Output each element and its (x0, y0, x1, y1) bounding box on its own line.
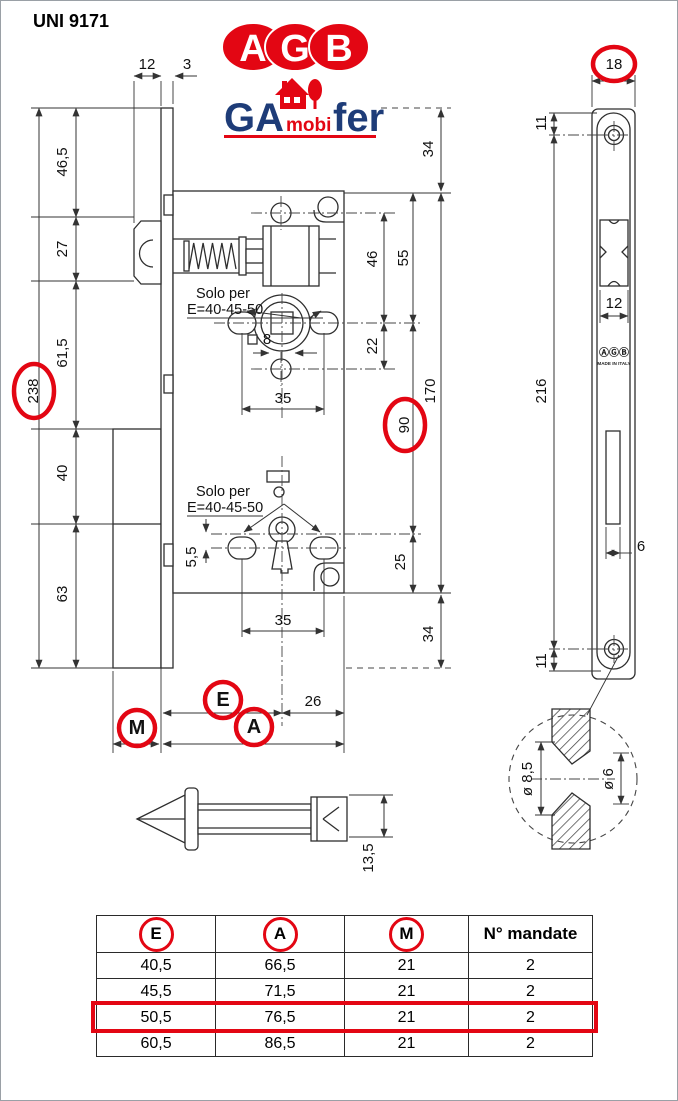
table-cell: 21 (344, 979, 468, 1005)
countersink-detail: ø 8,5 ø 6 (509, 709, 637, 849)
dim-26: 26 (305, 693, 322, 710)
dim-27: 27 (54, 241, 71, 258)
table-cell: 86,5 (216, 1031, 345, 1057)
dim-35-top: 35 (275, 390, 292, 407)
callout-a: A (247, 716, 261, 738)
table-cell: 2 (468, 1031, 592, 1057)
table-row: 50,576,5212 (97, 1005, 593, 1031)
agb-letter: B (325, 28, 352, 70)
header-mandate: N° mandate (468, 916, 592, 953)
table-cell: 21 (344, 1031, 468, 1057)
dim-63: 63 (54, 586, 71, 603)
dim-22: 22 (364, 338, 381, 355)
table-row: 40,566,5212 (97, 953, 593, 979)
dim-13-5: 13,5 (360, 843, 377, 872)
agb-logo: A G B (222, 23, 369, 71)
table-cell: 2 (468, 953, 592, 979)
dim-8-5: ø 8,5 (519, 762, 536, 796)
dim-square-8: 8 (263, 331, 271, 348)
table-row: 60,586,5212 (97, 1031, 593, 1057)
dim-61-5: 61,5 (54, 338, 71, 367)
table-cell: 66,5 (216, 953, 345, 979)
front-view: 18 11 12 ⒶⒼⒷ MADE IN ITALY 216 (533, 47, 645, 715)
dim-11-top: 11 (533, 115, 550, 131)
dim-55: 55 (395, 250, 412, 267)
standard-label: UNI 9171 (33, 11, 109, 31)
spec-table-body: 40,566,521245,571,521250,576,521260,586,… (97, 953, 593, 1057)
made-in-italy-label: MADE IN ITALY (597, 361, 630, 366)
table-cell: 45,5 (97, 979, 216, 1005)
section-bottom (552, 793, 590, 849)
spindle-shaft (198, 804, 311, 834)
table-cell: 21 (344, 1005, 468, 1031)
table-cell: 50,5 (97, 1005, 216, 1031)
callout-m: M (129, 717, 146, 739)
callout-e: E (216, 689, 229, 711)
dim-5-5: 5,5 (183, 547, 200, 568)
dim-216: 216 (533, 378, 550, 403)
table-cell: 2 (468, 1005, 592, 1031)
table-header-row: E A M N° mandate (97, 916, 593, 953)
gamobifer-logo: GA mobi fer (224, 78, 384, 140)
side-view: Solo per E=40-45-50 8 35 Solo per E=40-4… (113, 108, 421, 726)
header-m-circle: M (389, 917, 424, 952)
agb-letter: A (239, 28, 266, 70)
dim-12-latch: 12 (606, 295, 623, 312)
table-cell: 2 (468, 979, 592, 1005)
header-e: E (97, 916, 216, 953)
gamobifer-fer: fer (333, 96, 384, 140)
spindle-flange (185, 788, 198, 850)
table-cell: 21 (344, 953, 468, 979)
dim-11-bottom: 11 (533, 653, 550, 669)
dim-25: 25 (392, 554, 409, 571)
note-solo-per: Solo per (196, 484, 250, 500)
header-a-circle: A (263, 917, 298, 952)
gamobifer-mobi: mobi (286, 115, 331, 136)
dim-18: 18 (606, 56, 623, 73)
tree-icon (308, 79, 322, 101)
header-a: A (216, 916, 345, 953)
note-e-range: E=40-45-50 (187, 500, 263, 516)
latch-head (134, 221, 161, 284)
table-cell: 71,5 (216, 979, 345, 1005)
dim-6-detail: ø 6 (600, 768, 617, 790)
dim-6: 6 (637, 538, 645, 555)
table-row: 45,571,5212 (97, 979, 593, 1005)
dim-34-bottom: 34 (420, 626, 437, 643)
note-solo-per: Solo per (196, 286, 250, 302)
technical-drawing: UNI 9171 A G B GA mobi fer (1, 1, 677, 881)
gamobifer-underline (224, 135, 376, 138)
dim-46-5: 46,5 (54, 147, 71, 176)
dim-12: 12 (139, 56, 156, 73)
section-top (552, 709, 590, 764)
spec-table-wrap: E A M N° mandate 40,566,521245,571,52125… (96, 915, 593, 1057)
note-e-range: E=40-45-50 (187, 302, 263, 318)
spec-sheet: UNI 9171 A G B GA mobi fer (0, 0, 678, 1101)
header-e-circle: E (139, 917, 174, 952)
table-cell: 76,5 (216, 1005, 345, 1031)
spindle-view: 13,5 (137, 788, 393, 873)
header-m: M (344, 916, 468, 953)
dim-35-bottom: 35 (275, 612, 292, 629)
table-cell: 60,5 (97, 1031, 216, 1057)
gamobifer-ga: GA (224, 96, 284, 140)
spec-table: E A M N° mandate 40,566,521245,571,52125… (96, 915, 593, 1057)
dim-46: 46 (364, 251, 381, 268)
agb-letter: G (280, 28, 310, 70)
dim-170: 170 (422, 378, 439, 403)
dim-3: 3 (183, 56, 191, 73)
deadbolt-block (113, 429, 161, 668)
dim-90: 90 (396, 417, 413, 434)
table-cell: 40,5 (97, 953, 216, 979)
dim-34-top: 34 (420, 141, 437, 158)
dim-40: 40 (54, 465, 71, 482)
agb-stamp-icon: ⒶⒼⒷ (599, 346, 629, 359)
dim-238: 238 (25, 378, 42, 403)
faceplate-front (592, 109, 635, 679)
